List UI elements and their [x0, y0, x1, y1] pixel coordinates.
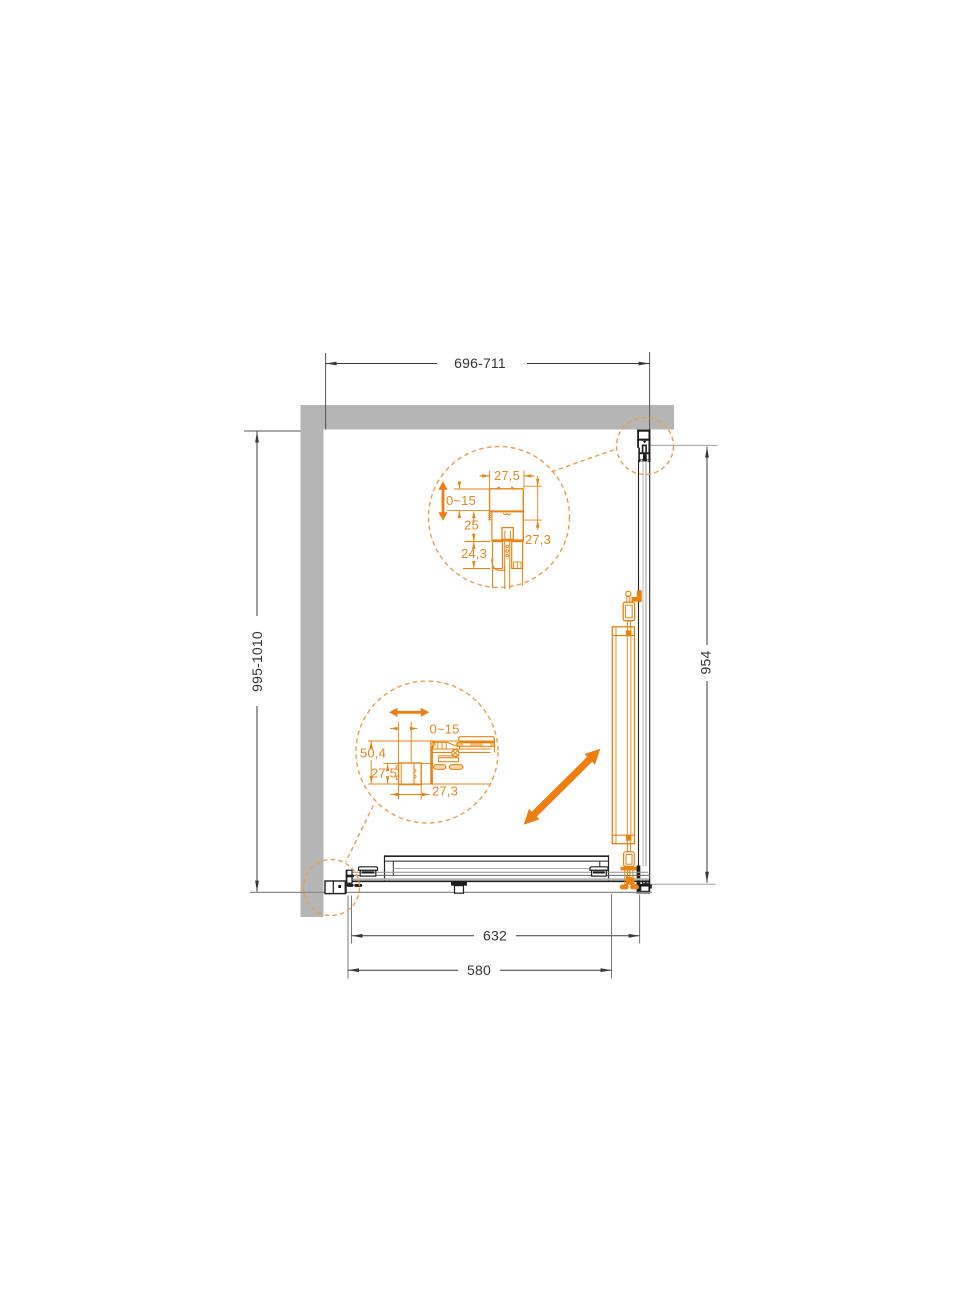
- svg-text:954: 954: [698, 651, 714, 675]
- svg-text:50,4: 50,4: [360, 746, 386, 761]
- svg-text:27,3: 27,3: [525, 532, 551, 547]
- svg-text:995-1010: 995-1010: [249, 631, 265, 692]
- svg-text:0~15: 0~15: [446, 493, 476, 508]
- svg-text:27,5: 27,5: [371, 765, 397, 780]
- svg-text:696-711: 696-711: [454, 355, 506, 371]
- svg-text:25: 25: [464, 518, 479, 533]
- svg-text:27,3: 27,3: [432, 784, 458, 799]
- svg-text:632: 632: [483, 928, 507, 944]
- svg-text:24,3: 24,3: [461, 546, 487, 561]
- svg-text:580: 580: [467, 962, 491, 978]
- svg-text:0~15: 0~15: [429, 722, 459, 737]
- svg-text:27,5: 27,5: [494, 468, 520, 483]
